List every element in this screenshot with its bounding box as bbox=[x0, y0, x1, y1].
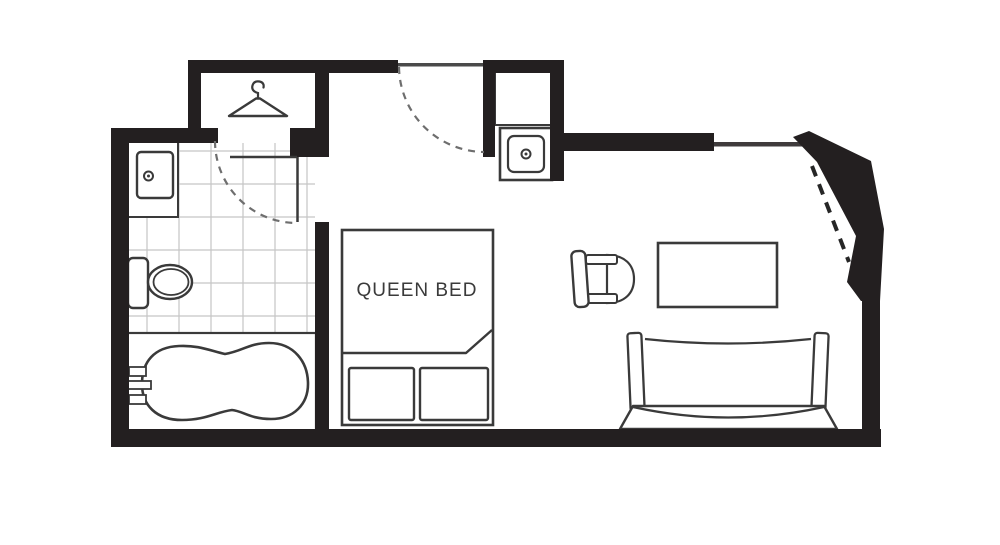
pillow-left bbox=[349, 368, 414, 420]
floor-plan-svg: QUEEN BED bbox=[0, 0, 1000, 545]
partition-wall bbox=[315, 222, 329, 447]
sofa bbox=[620, 333, 837, 429]
top-wall-left bbox=[188, 60, 398, 73]
bath-area bbox=[124, 333, 316, 431]
hanger-hook-icon bbox=[252, 81, 263, 98]
toilet bbox=[128, 258, 192, 308]
table bbox=[658, 243, 777, 307]
alcove-left-wall bbox=[483, 60, 495, 157]
bath-faucet-tab-top bbox=[129, 367, 146, 376]
entry-opening-line bbox=[714, 142, 806, 147]
vanity-drain-dot bbox=[147, 175, 150, 178]
sofa-seat-edge bbox=[645, 339, 811, 344]
armchair-back bbox=[571, 251, 589, 308]
bottom-wall bbox=[111, 429, 881, 447]
armchair bbox=[571, 251, 634, 308]
armchair-armrest-bottom bbox=[586, 294, 617, 303]
queen-bed bbox=[342, 230, 493, 425]
closet bbox=[229, 81, 287, 116]
alcove-drain-dot bbox=[525, 153, 528, 156]
entry-chamfer-wall bbox=[793, 131, 884, 301]
vanity-sink bbox=[137, 152, 173, 198]
hanger-icon bbox=[229, 99, 287, 117]
sink-alcove bbox=[495, 68, 552, 180]
alcove-right-wall bbox=[550, 60, 564, 181]
sofa-arm-right bbox=[811, 333, 828, 412]
alcove-counter bbox=[495, 68, 552, 125]
vanity bbox=[126, 139, 178, 217]
armchair-armrest-top bbox=[586, 255, 617, 264]
vestibule-door-header bbox=[398, 63, 483, 67]
pillow-right bbox=[420, 368, 488, 420]
vestibule-door-swing-icon bbox=[399, 67, 484, 152]
bathroom-top-wall bbox=[111, 128, 218, 143]
toilet-tank bbox=[128, 258, 148, 308]
top-wall-right bbox=[556, 133, 714, 151]
floor-plan: QUEEN BED bbox=[0, 0, 1000, 545]
closet-right-wall bbox=[315, 60, 329, 157]
sofa-arm-left bbox=[627, 333, 644, 412]
toilet-bowl bbox=[148, 265, 192, 299]
left-wall bbox=[111, 128, 129, 447]
bath-faucet-tab-bottom bbox=[129, 395, 146, 404]
bathroom-door-swing-icon bbox=[215, 141, 296, 223]
bed-label: QUEEN BED bbox=[357, 280, 478, 301]
bathtub bbox=[142, 343, 308, 420]
